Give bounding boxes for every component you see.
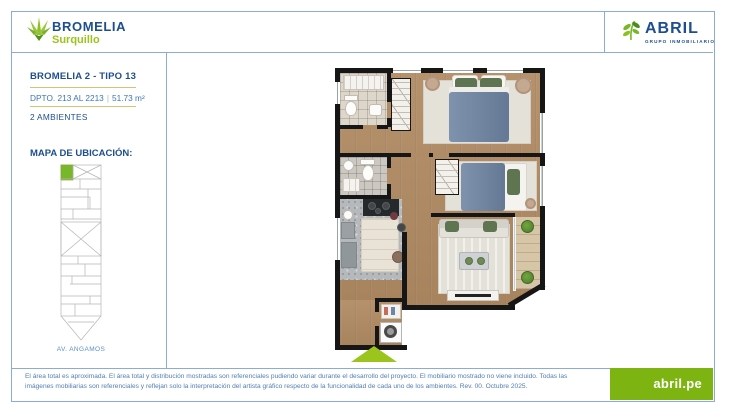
wall (402, 305, 515, 310)
toilet-icon (362, 165, 374, 181)
bromelia-plant-icon (27, 16, 51, 42)
project-district: Surquillo (52, 34, 126, 46)
unit-area: 51.73 m² (112, 93, 145, 103)
window (540, 113, 545, 153)
project-name: BROMELIA (52, 19, 126, 34)
plant-icon (521, 271, 534, 284)
shower (343, 75, 384, 90)
fridge (341, 242, 357, 268)
decor-plate (477, 257, 485, 265)
kitchen-island (361, 218, 399, 272)
abril-logo: ABRIL GRUPO INMOBILIARIO (645, 21, 715, 44)
door-opening (387, 102, 391, 118)
detergent-icon (384, 307, 388, 315)
wall (387, 73, 391, 127)
entrance-arrow-icon (351, 346, 397, 362)
unit-title: BROMELIA 2 - TIPO 13 (30, 71, 136, 82)
door-opening (363, 125, 377, 129)
detergent-icon (391, 307, 395, 315)
pouf-icon (515, 77, 532, 94)
disclaimer-text: El área total es aproximada. El área tot… (25, 372, 597, 392)
unit-separator: | (104, 93, 112, 103)
window (335, 82, 340, 104)
nightstand-icon (525, 198, 536, 209)
decor-bowl (390, 212, 398, 220)
closet (391, 78, 411, 131)
door-opening (387, 168, 391, 184)
panel-divider (166, 52, 167, 368)
tv-icon (455, 294, 491, 297)
window (443, 68, 473, 73)
door-opening (433, 153, 449, 157)
bathroom-sink (369, 104, 382, 116)
bed2-duvet (461, 163, 505, 211)
website-link[interactable]: abril.pe (610, 368, 713, 400)
unit-detail: DPTO. 213 AL 2213|51.73 m² (30, 93, 145, 103)
burner-icon (375, 208, 381, 214)
shower (342, 178, 360, 192)
footer-divider (11, 368, 713, 369)
door-opening (411, 153, 429, 157)
sofa-green-pillow (445, 221, 459, 232)
wall (375, 298, 379, 312)
decor-plate (465, 257, 473, 265)
kitchen-sink (343, 210, 353, 220)
sofa-green-pillow (483, 221, 497, 232)
wall (375, 326, 379, 348)
window (393, 68, 421, 73)
bed1-duvet (449, 92, 509, 142)
toilet-icon (345, 101, 357, 116)
brochure-page: BROMELIA Surquillo ABRIL GRUPO INMOBILIA… (0, 0, 730, 410)
divider-gold (30, 87, 136, 88)
location-map (60, 164, 102, 344)
rooms-label: 2 AMBIENTES (30, 112, 88, 122)
floor-plan (335, 68, 545, 360)
pouf-icon (425, 76, 440, 91)
map-title: MAPA DE UBICACIÓN: (30, 148, 132, 159)
brand-tagline: GRUPO INMOBILIARIO (645, 39, 715, 44)
street-label: AV. ANGAMOS (40, 346, 122, 353)
divider-gold (30, 106, 136, 107)
brand-name: ABRIL (645, 21, 715, 37)
abril-leaf-icon (622, 19, 641, 41)
kitchen-counter (341, 222, 355, 239)
plant-icon (521, 220, 534, 233)
header-divider (11, 52, 713, 53)
balcony-glass-wall (513, 217, 516, 291)
window (487, 68, 523, 73)
unit-range: DPTO. 213 AL 2213 (30, 93, 104, 103)
washer-drum (384, 325, 397, 338)
window (335, 218, 340, 260)
bathroom-sink (343, 160, 354, 171)
stool-icon (397, 223, 406, 232)
wall (431, 213, 515, 217)
wall (340, 195, 388, 199)
burner-icon (382, 202, 390, 210)
bromelia-logo: BROMELIA Surquillo (52, 19, 126, 46)
wall (335, 68, 340, 350)
wall (375, 298, 407, 302)
closet (435, 159, 459, 195)
bed2-green-pillow (507, 169, 520, 195)
header-vertical-divider (604, 11, 605, 52)
window (540, 166, 545, 206)
